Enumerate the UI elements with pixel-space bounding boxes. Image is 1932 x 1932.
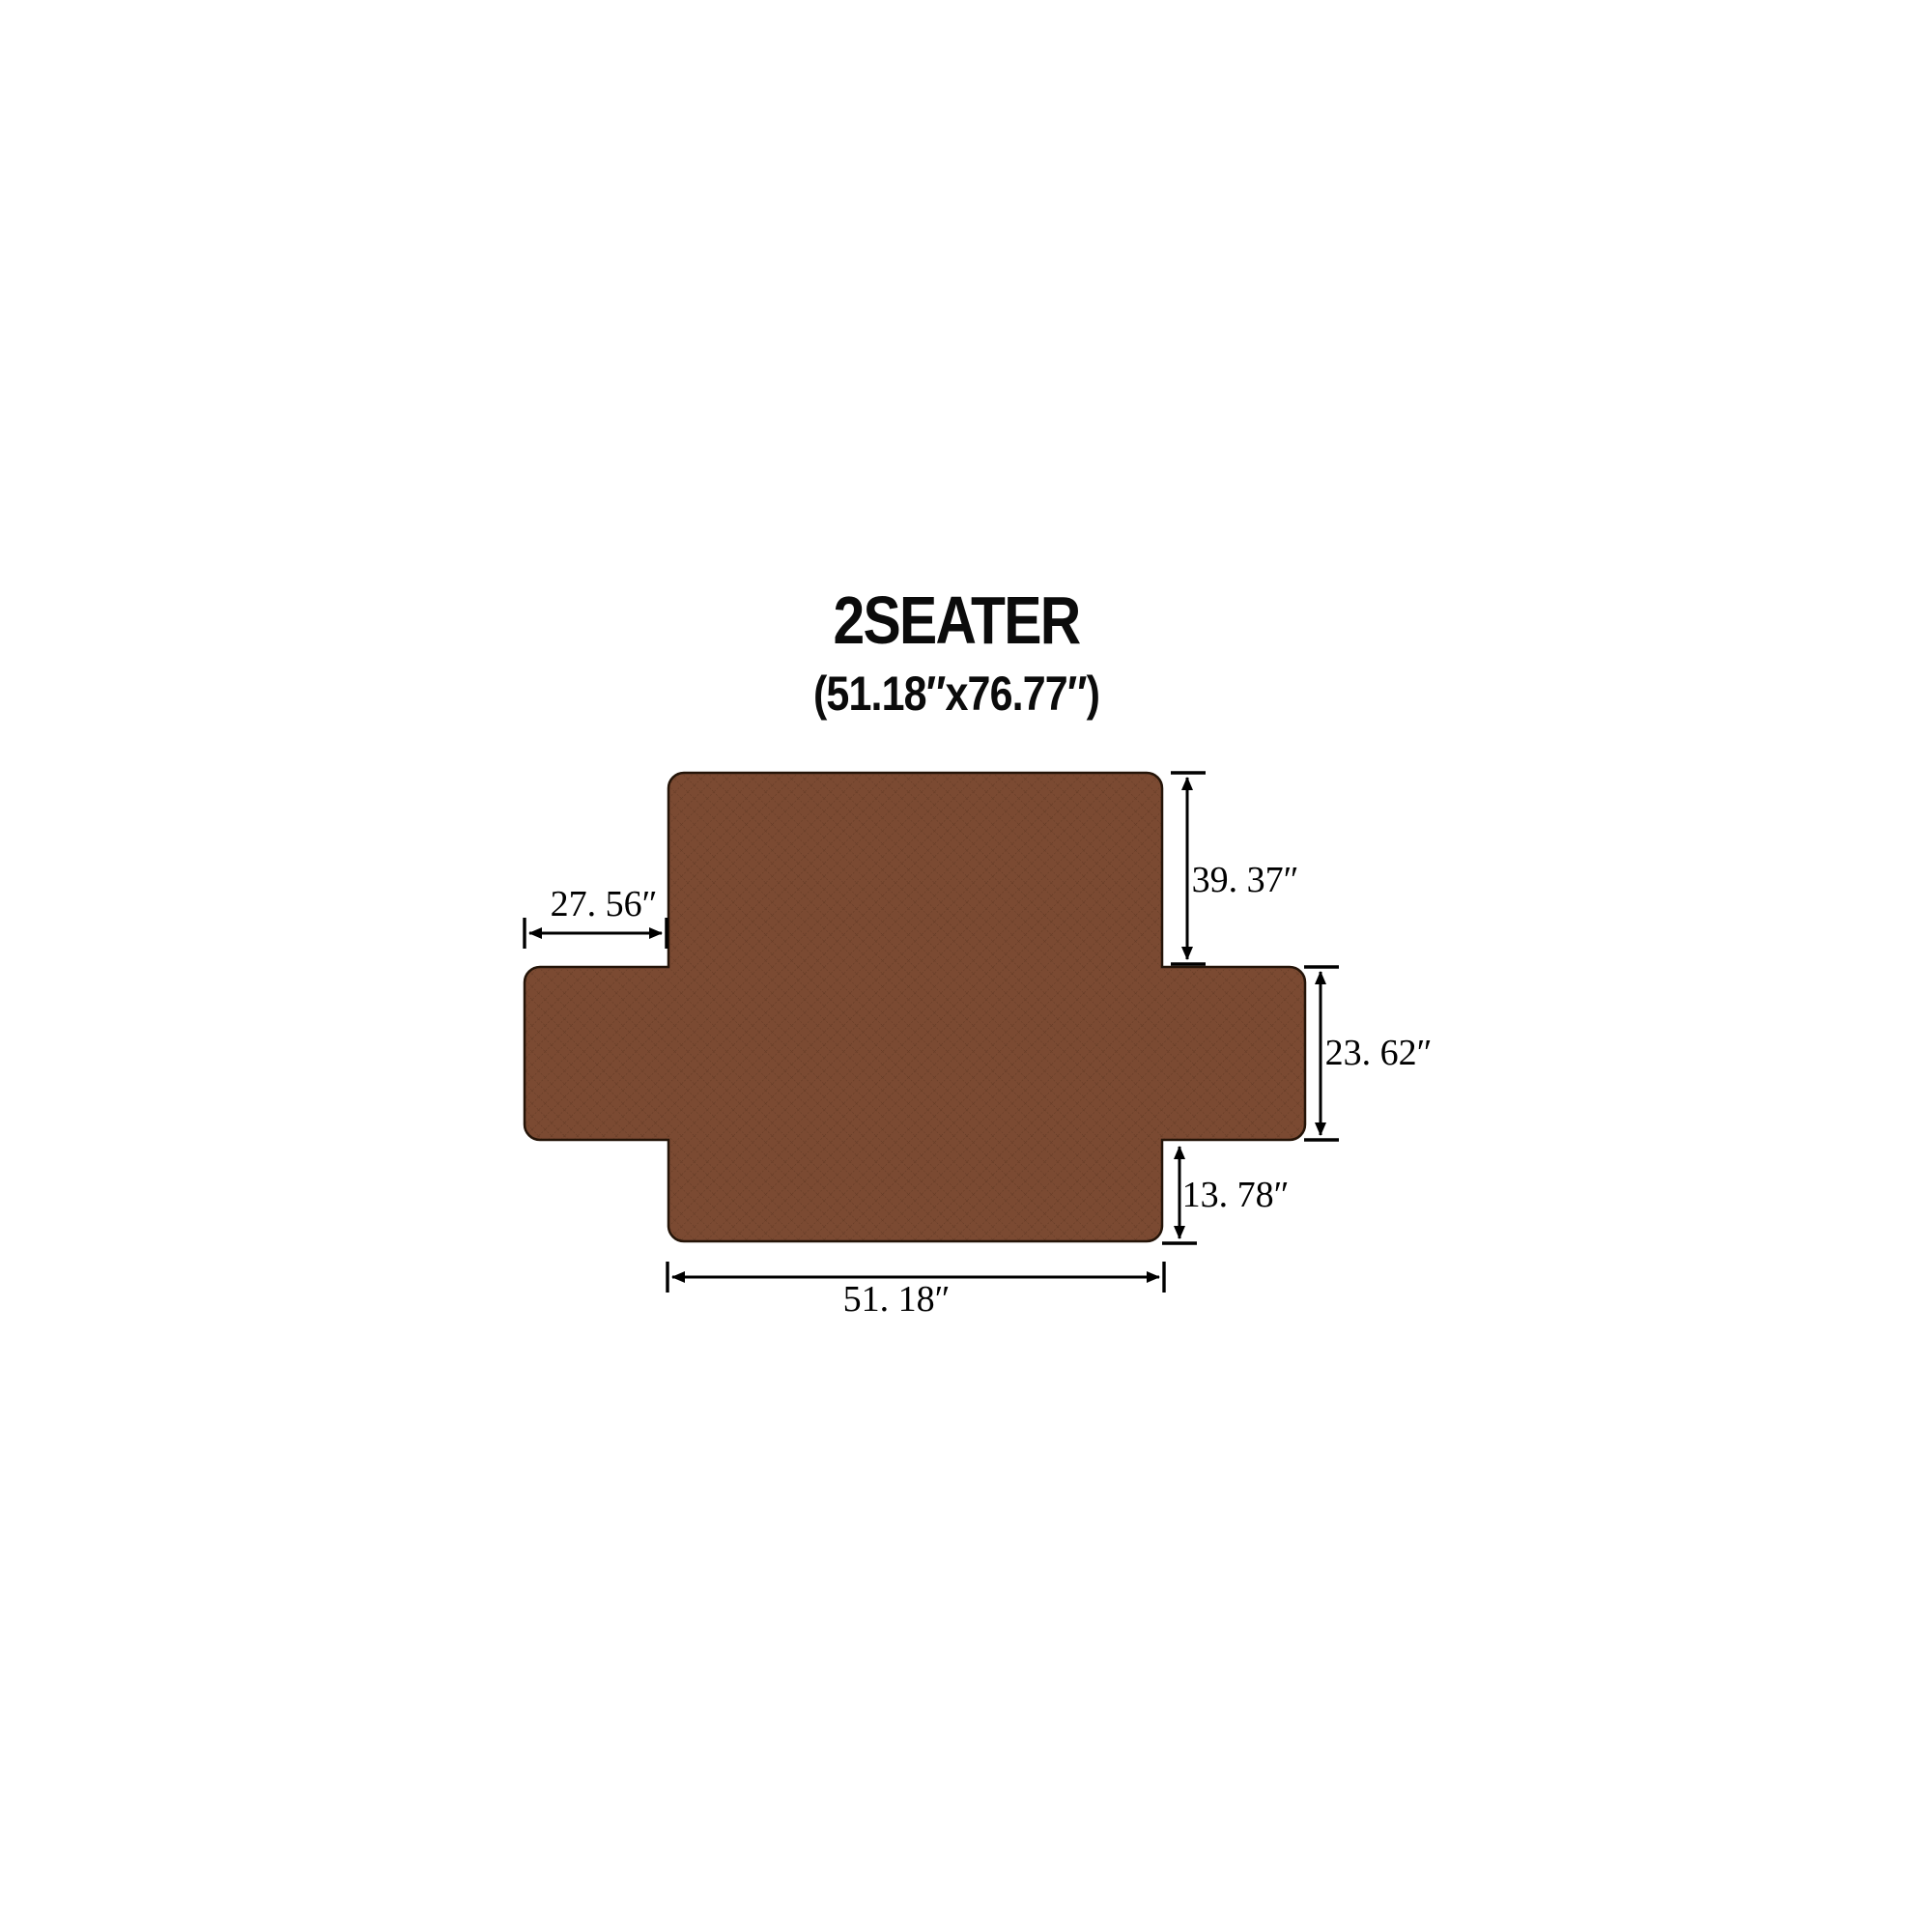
dimension-label-seat-width: 51. 18″ bbox=[843, 1278, 951, 1321]
dimension-label-side-drop: 23. 62″ bbox=[1325, 1032, 1433, 1074]
dimension-label-arm-flap: 27. 56″ bbox=[551, 883, 658, 925]
dimension-label-front-drop: 13. 78″ bbox=[1182, 1174, 1290, 1216]
dimension-label-back-height: 39. 37″ bbox=[1192, 859, 1299, 901]
product-dimension-diagram: 2SEATER (51.18″x76.77″) bbox=[0, 0, 1932, 1932]
sofa-cover-diagram bbox=[0, 0, 1932, 1932]
